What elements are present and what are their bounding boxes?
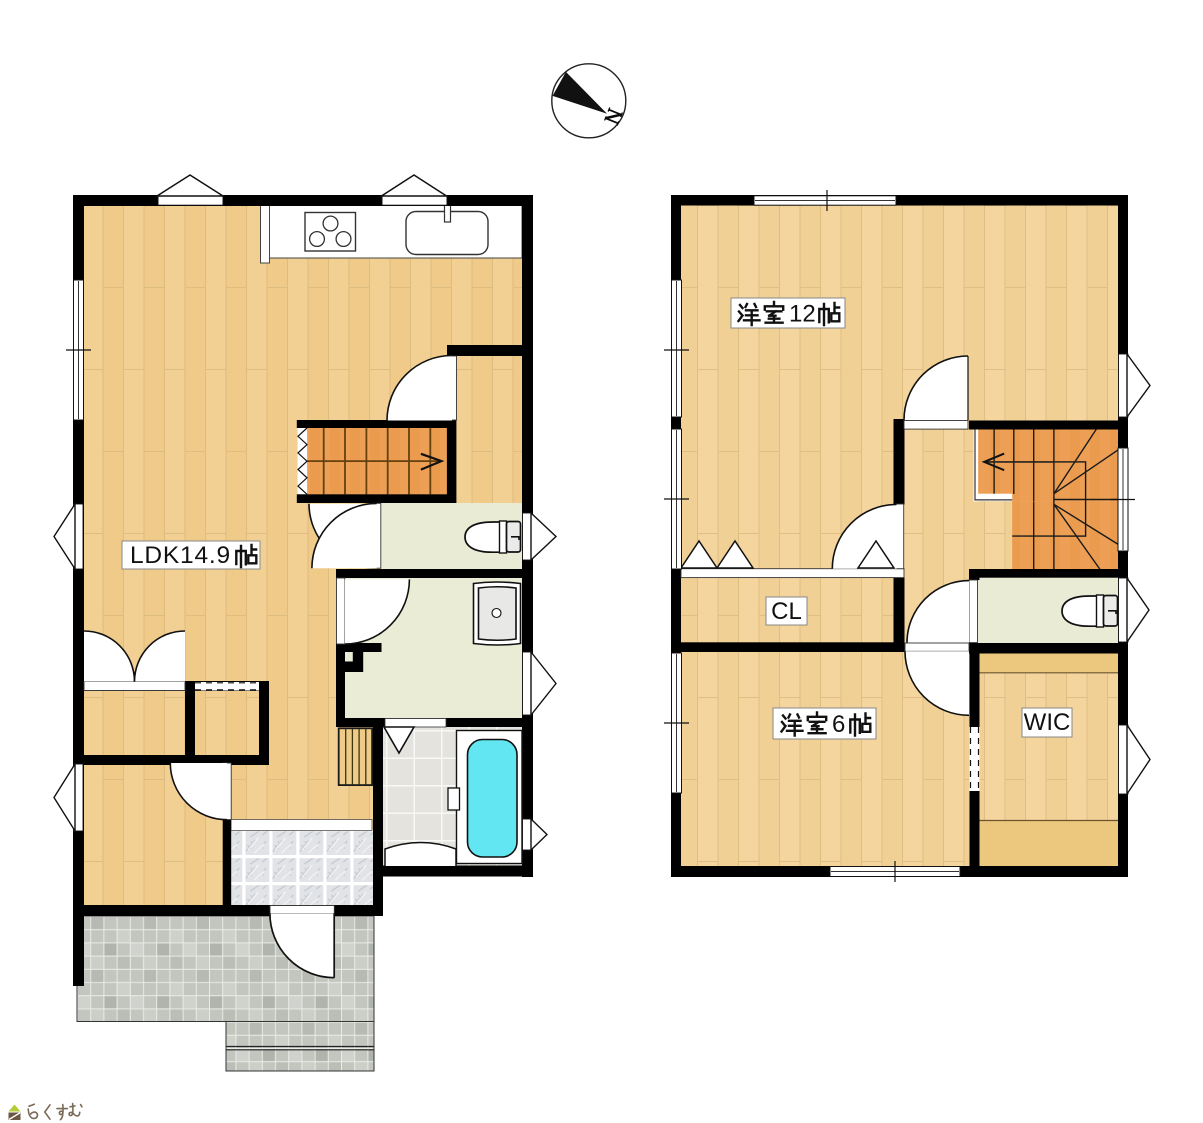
svg-text:6: 6 [832,711,845,738]
svg-text:12: 12 [789,301,816,328]
svg-text:LDK14.9: LDK14.9 [130,542,231,569]
svg-text:WIC: WIC [1024,709,1071,736]
svg-text:CL: CL [771,598,802,625]
